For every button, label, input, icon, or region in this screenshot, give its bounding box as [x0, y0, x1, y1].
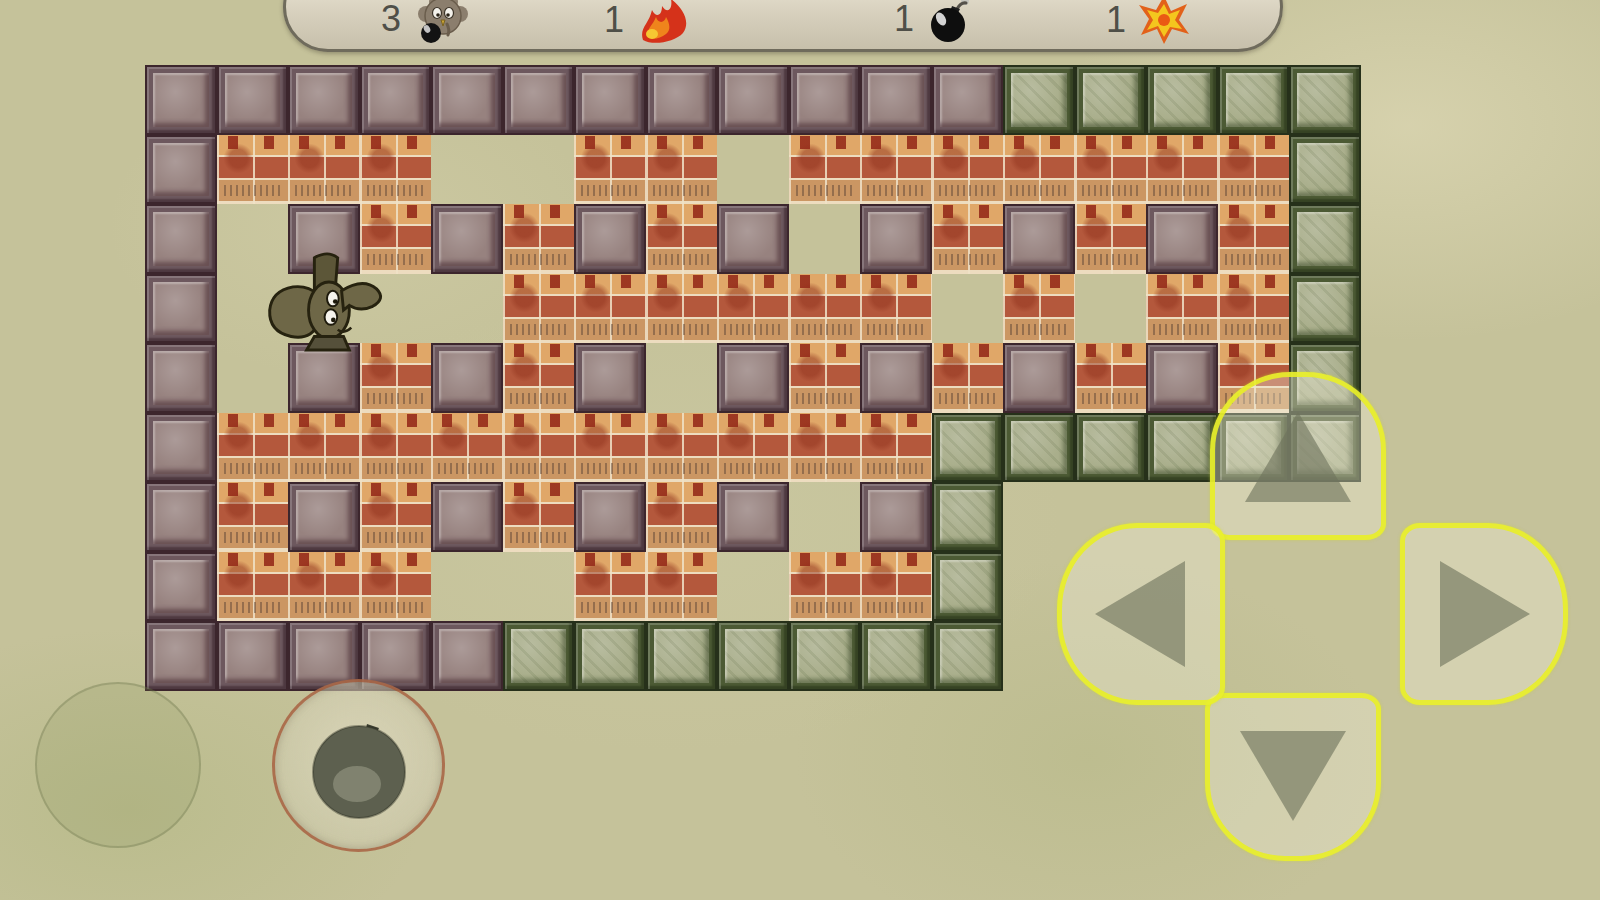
stone-border-block: [145, 135, 217, 205]
stone-pillar-block: [860, 204, 932, 274]
brick-block: [646, 204, 718, 274]
brick-block: [360, 482, 432, 552]
stone-pillar-block: [717, 204, 789, 274]
bomb-button[interactable]: [272, 679, 445, 852]
elephant-lives-icon: [414, 0, 470, 44]
brick-block: [860, 274, 932, 344]
stone-border-block: [145, 482, 217, 552]
green-stone-block: [932, 621, 1004, 691]
brick-block: [503, 274, 575, 344]
brick-block: [1218, 204, 1290, 274]
stone-border-block: [717, 65, 789, 135]
brick-block: [574, 135, 646, 205]
brick-block: [860, 135, 932, 205]
brick-block: [503, 413, 575, 483]
flame-count: 1: [604, 2, 624, 38]
down-arrow-icon: [1234, 727, 1352, 827]
brick-block: [217, 413, 289, 483]
stone-pillar-block: [431, 343, 503, 413]
stone-pillar-block: [574, 482, 646, 552]
brick-block: [503, 482, 575, 552]
green-stone-block: [1003, 65, 1075, 135]
brick-block: [646, 135, 718, 205]
brick-block: [789, 552, 861, 622]
stone-pillar-block: [431, 482, 503, 552]
explosion-icon: [1139, 0, 1189, 44]
brick-block: [1075, 204, 1147, 274]
stone-border-block: [145, 204, 217, 274]
green-stone-block: [1289, 274, 1361, 344]
stone-border-block: [145, 621, 217, 691]
hud-lives: 3: [381, 0, 470, 44]
brick-block: [646, 552, 718, 622]
dpad-down-button[interactable]: [1205, 693, 1381, 861]
stone-border-block: [217, 65, 289, 135]
brick-block: [717, 274, 789, 344]
brick-block: [288, 552, 360, 622]
stone-border-block: [789, 65, 861, 135]
left-arrow-icon: [1091, 555, 1191, 673]
green-stone-block: [503, 621, 575, 691]
brick-block: [932, 204, 1004, 274]
brick-block: [860, 552, 932, 622]
lives-count: 3: [381, 1, 401, 37]
stone-border-block: [288, 65, 360, 135]
brick-block: [789, 413, 861, 483]
stone-border-block: [431, 621, 503, 691]
stone-pillar-block: [574, 343, 646, 413]
brick-block: [860, 413, 932, 483]
up-arrow-icon: [1239, 406, 1357, 506]
brick-block: [503, 204, 575, 274]
brick-block: [288, 135, 360, 205]
stone-pillar-block: [717, 482, 789, 552]
green-stone-block: [932, 413, 1004, 483]
stone-pillar-block: [431, 204, 503, 274]
brick-block: [1218, 135, 1290, 205]
hud-bombs: 1: [894, 0, 975, 44]
brick-block: [360, 343, 432, 413]
explosion-count: 1: [1106, 2, 1126, 38]
brick-block: [932, 343, 1004, 413]
green-stone-block: [1146, 413, 1218, 483]
green-stone-block: [1075, 65, 1147, 135]
brick-block: [789, 135, 861, 205]
brick-block: [431, 413, 503, 483]
brick-block: [1075, 135, 1147, 205]
hud-bar: 3 1 1: [283, 0, 1283, 52]
stone-border-block: [503, 65, 575, 135]
brick-block: [217, 552, 289, 622]
brick-block: [574, 413, 646, 483]
dpad-right-button[interactable]: [1400, 523, 1568, 705]
green-stone-block: [1075, 413, 1147, 483]
right-arrow-icon: [1434, 555, 1534, 673]
brick-block: [360, 413, 432, 483]
inactive-action-button[interactable]: [35, 682, 201, 848]
brick-block: [646, 413, 718, 483]
stone-pillar-block: [1003, 343, 1075, 413]
brick-block: [1003, 274, 1075, 344]
green-stone-block: [1146, 65, 1218, 135]
stone-pillar-block: [1003, 204, 1075, 274]
brick-block: [646, 482, 718, 552]
brick-block: [932, 135, 1004, 205]
stone-border-block: [145, 65, 217, 135]
green-stone-block: [574, 621, 646, 691]
bomb-count: 1: [894, 1, 914, 37]
stone-border-block: [145, 552, 217, 622]
brick-block: [288, 413, 360, 483]
stone-border-block: [431, 65, 503, 135]
green-stone-block: [860, 621, 932, 691]
brick-block: [1075, 343, 1147, 413]
brick-block: [646, 274, 718, 344]
dpad-left-button[interactable]: [1057, 523, 1225, 705]
green-stone-block: [1003, 413, 1075, 483]
green-stone-block: [1289, 65, 1361, 135]
stone-pillar-block: [288, 482, 360, 552]
brick-block: [574, 552, 646, 622]
bomb-icon: [927, 0, 975, 44]
stone-border-block: [646, 65, 718, 135]
stone-pillar-block: [860, 343, 932, 413]
green-stone-block: [932, 482, 1004, 552]
stone-pillar-block: [574, 204, 646, 274]
bomb-action-icon: [299, 706, 419, 826]
brick-block: [217, 482, 289, 552]
stone-pillar-block: [860, 482, 932, 552]
stone-border-block: [217, 621, 289, 691]
green-stone-block: [932, 552, 1004, 622]
brick-block: [789, 343, 861, 413]
green-stone-block: [1289, 135, 1361, 205]
green-stone-block: [717, 621, 789, 691]
hud-explosion: 1: [1106, 0, 1189, 44]
stone-border-block: [145, 413, 217, 483]
stone-border-block: [145, 274, 217, 344]
brick-block: [217, 135, 289, 205]
brick-block: [1146, 274, 1218, 344]
stone-border-block: [932, 65, 1004, 135]
brick-block: [789, 274, 861, 344]
brick-block: [574, 274, 646, 344]
brick-block: [1003, 135, 1075, 205]
brick-block: [360, 552, 432, 622]
green-stone-block: [1218, 65, 1290, 135]
brick-block: [503, 343, 575, 413]
green-stone-block: [1289, 204, 1361, 274]
brick-block: [360, 135, 432, 205]
flame-icon: [637, 0, 695, 44]
stone-pillar-block: [1146, 343, 1218, 413]
stone-border-block: [360, 65, 432, 135]
stone-pillar-block: [1146, 204, 1218, 274]
green-stone-block: [789, 621, 861, 691]
green-stone-block: [646, 621, 718, 691]
stone-pillar-block: [717, 343, 789, 413]
brick-block: [1146, 135, 1218, 205]
dpad-up-button[interactable]: [1210, 372, 1386, 540]
brick-block: [1218, 274, 1290, 344]
stone-border-block: [145, 343, 217, 413]
stone-border-block: [574, 65, 646, 135]
stone-border-block: [860, 65, 932, 135]
hud-flame: 1: [604, 0, 695, 44]
player-elephant: [263, 250, 391, 352]
brick-block: [717, 413, 789, 483]
stone-pillar-block: [288, 343, 360, 413]
